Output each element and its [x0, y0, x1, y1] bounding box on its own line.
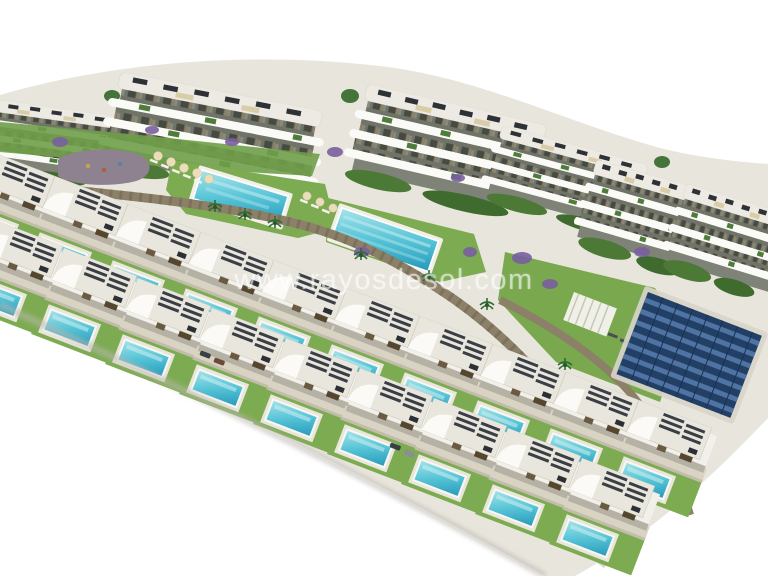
- playground: [58, 150, 149, 185]
- render-canvas: [0, 0, 768, 576]
- aerial-render: www.rayosdesol.com: [0, 0, 768, 576]
